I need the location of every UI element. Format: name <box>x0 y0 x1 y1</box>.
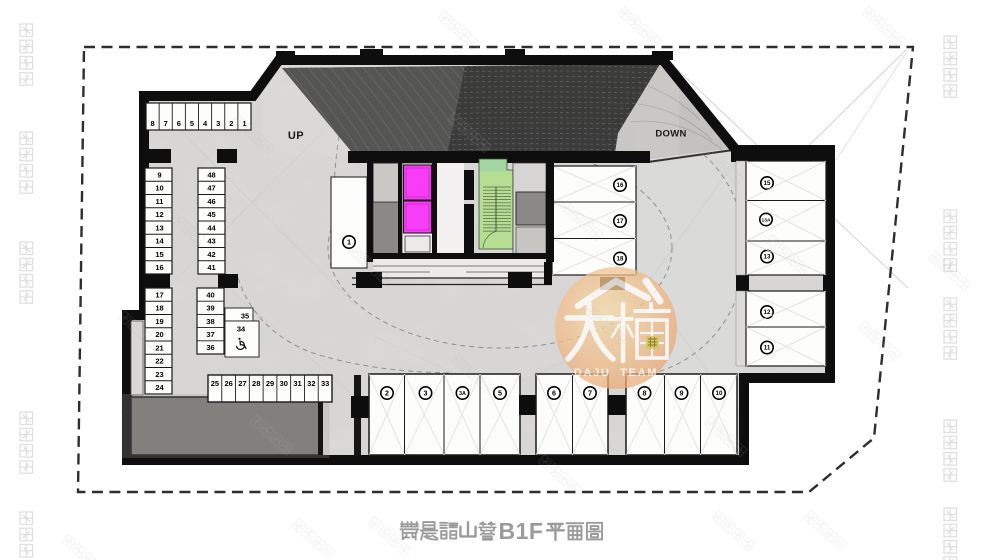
svg-text:16: 16 <box>617 182 624 189</box>
svg-text:38: 38 <box>206 317 214 326</box>
svg-text:44: 44 <box>207 223 216 232</box>
svg-text:15: 15 <box>155 250 163 259</box>
svg-text:1: 1 <box>347 238 351 247</box>
svg-text:39: 39 <box>206 304 214 313</box>
svg-text:34: 34 <box>237 325 246 334</box>
svg-text:5: 5 <box>498 389 502 398</box>
svg-text:31: 31 <box>293 379 301 388</box>
svg-text:43: 43 <box>207 237 215 246</box>
svg-text:45: 45 <box>207 210 215 219</box>
svg-text:32: 32 <box>307 379 315 388</box>
svg-text:7: 7 <box>164 119 168 128</box>
svg-text:DOWN: DOWN <box>655 129 686 140</box>
svg-text:18: 18 <box>155 304 163 313</box>
svg-text:24: 24 <box>155 383 164 392</box>
svg-text:3: 3 <box>216 119 220 128</box>
svg-text:13: 13 <box>764 254 771 261</box>
svg-text:9: 9 <box>680 389 684 398</box>
svg-text:29: 29 <box>266 379 274 388</box>
svg-text:41: 41 <box>207 263 215 272</box>
svg-text:47: 47 <box>207 184 215 193</box>
svg-text:28: 28 <box>252 379 260 388</box>
svg-text:12: 12 <box>764 309 771 316</box>
svg-text:9: 9 <box>157 170 161 179</box>
svg-text:27: 27 <box>238 379 246 388</box>
svg-text:11: 11 <box>156 197 164 206</box>
svg-text:19: 19 <box>155 317 163 326</box>
svg-text:40: 40 <box>206 290 214 299</box>
svg-text:16: 16 <box>155 263 163 272</box>
svg-text:46: 46 <box>207 197 215 206</box>
svg-text:20: 20 <box>155 330 163 339</box>
svg-text:14: 14 <box>155 237 164 246</box>
svg-text:22: 22 <box>155 357 163 366</box>
svg-text:30: 30 <box>280 379 288 388</box>
svg-text:17: 17 <box>617 218 624 225</box>
svg-text:48: 48 <box>207 170 215 179</box>
svg-text:DAJU TEAM: DAJU TEAM <box>574 367 658 379</box>
svg-text:42: 42 <box>207 250 215 259</box>
svg-text:8: 8 <box>643 389 647 398</box>
svg-text:B1F: B1F <box>499 518 544 544</box>
svg-text:26: 26 <box>224 379 232 388</box>
svg-text:13: 13 <box>155 223 163 232</box>
svg-text:23: 23 <box>155 370 163 379</box>
svg-text:25: 25 <box>211 379 219 388</box>
svg-text:3A: 3A <box>459 391 466 397</box>
svg-text:6: 6 <box>552 389 556 398</box>
svg-text:18: 18 <box>617 256 624 263</box>
svg-text:36: 36 <box>206 343 214 352</box>
svg-text:10: 10 <box>716 390 723 397</box>
svg-text:5: 5 <box>190 119 194 128</box>
svg-text:13A: 13A <box>762 217 771 223</box>
svg-text:8: 8 <box>150 119 154 128</box>
svg-text:11: 11 <box>764 345 771 352</box>
svg-text:UP: UP <box>288 130 304 142</box>
svg-text:17: 17 <box>155 290 163 299</box>
svg-text:2: 2 <box>385 389 389 398</box>
svg-text:15: 15 <box>764 180 771 187</box>
svg-text:37: 37 <box>206 330 214 339</box>
svg-text:10: 10 <box>155 184 163 193</box>
svg-text:33: 33 <box>321 379 329 388</box>
svg-text:6: 6 <box>177 119 181 128</box>
svg-text:35: 35 <box>241 312 249 321</box>
svg-text:3: 3 <box>424 389 428 398</box>
svg-text:2: 2 <box>229 119 233 128</box>
svg-text:7: 7 <box>588 389 592 398</box>
